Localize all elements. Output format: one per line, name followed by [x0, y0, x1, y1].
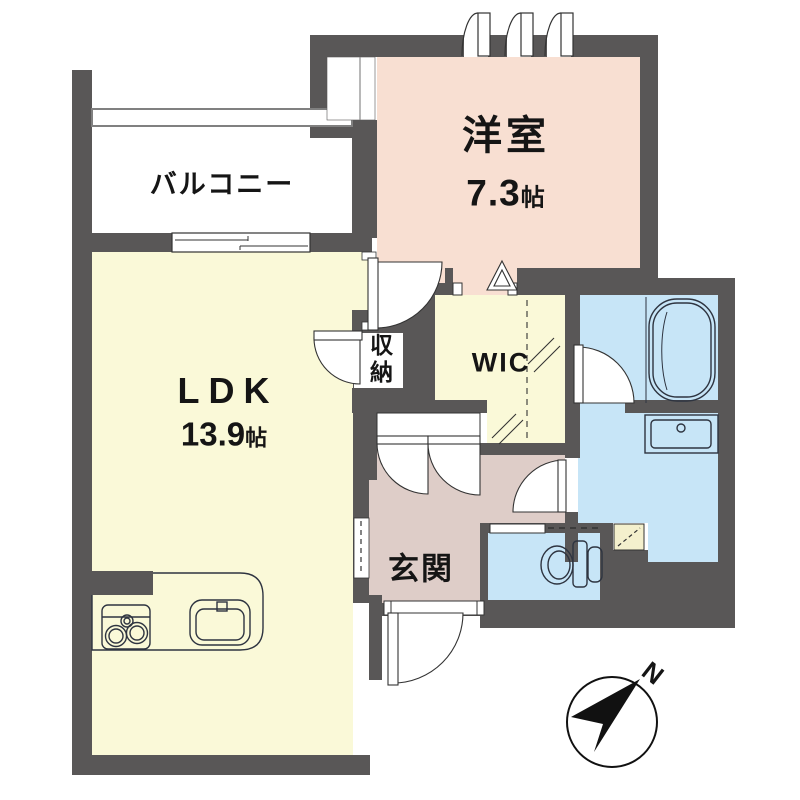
washroom-floor [578, 405, 718, 523]
compass [567, 677, 657, 767]
ldk-area-unit: 帖 [245, 426, 267, 451]
storage-label: 収納 [368, 333, 391, 387]
closet-door-leaf-right [428, 436, 480, 444]
washroom-floor-lower [648, 523, 718, 562]
bathroom-door-leaf [574, 345, 583, 403]
ldk-area-value: 13.9 [181, 416, 245, 453]
kitchen-wall-stub [88, 571, 153, 595]
balcony-label: バルコニー [150, 172, 294, 199]
floor-plan-drawing [0, 0, 800, 800]
western-room-door-leaf [368, 258, 378, 330]
ldk-hall-sliding-door [354, 518, 369, 578]
entry-door-swing [393, 613, 463, 683]
ldk-area: 13.9帖 [181, 418, 267, 451]
toilet-floor [488, 533, 600, 600]
top-casement-windows [462, 13, 573, 57]
storage-door-leaf [314, 331, 362, 340]
western-room-area-value: 7.3 [466, 173, 520, 214]
wic-label: WIC [472, 350, 530, 377]
ldk-floor [92, 252, 353, 758]
niche [614, 524, 644, 550]
closet-door-leaf-left [377, 436, 428, 444]
ldk-corridor [353, 252, 369, 312]
western-room-label: 洋室 [462, 116, 550, 156]
western-room-floor [377, 57, 640, 283]
entrance-label: 玄関 [388, 554, 454, 585]
washroom-door-leaf [558, 460, 566, 512]
floor-plan: バルコニー 洋室 7.3帖 LDK 13.9帖 WIC 収納 玄関 N [0, 0, 800, 800]
western-room-area: 7.3帖 [466, 175, 545, 212]
ldk-label: LDK [178, 373, 279, 409]
balcony-railing [92, 109, 352, 126]
western-room-recess [327, 57, 375, 120]
entry-door-leaf [388, 613, 398, 685]
ldk-balcony-window [172, 233, 310, 252]
western-room-area-unit: 帖 [521, 185, 546, 212]
